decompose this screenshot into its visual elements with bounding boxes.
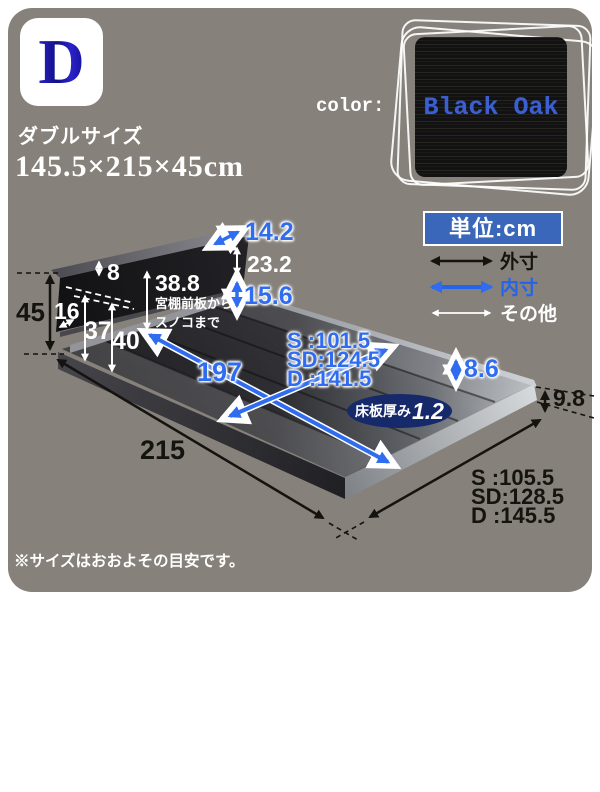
dim-outer-widths: S :105.5SD:128.5D :145.5: [471, 468, 564, 525]
outer-width-d: D :145.5: [471, 506, 564, 525]
floorboard-thickness-badge: 床板厚み 1.2: [347, 394, 452, 428]
note-line-1: 宮棚前板から: [155, 296, 233, 311]
legend-outer-label: 外寸: [500, 253, 538, 272]
dim-headboard-upper: 23.2: [247, 253, 292, 276]
dim-shelf-to-slat: 38.8: [155, 272, 200, 295]
floorboard-label: 床板厚み: [355, 404, 411, 418]
dim-inner-length: 197: [197, 359, 242, 386]
legend-other-label: その他: [500, 305, 557, 324]
disclaimer: ※サイズはおおよその目安です。 ※曲線部や若干の個体差などにより、 表記と多少の…: [14, 512, 353, 792]
size-badge: D: [20, 18, 103, 106]
dim-height-40: 40: [112, 329, 140, 354]
inner-width-d: D :141.5: [287, 369, 380, 388]
dim-height-37: 37: [84, 319, 112, 344]
disclaimer-line: ※曲線部や若干の個体差などにより、: [14, 612, 353, 632]
dim-frame-outer-height: 9.8: [553, 387, 585, 410]
dim-headboard-lower: 15.6: [244, 284, 293, 309]
disclaimer-line: あらかじめご了承ください。: [14, 732, 353, 752]
dim-outer-length: 215: [140, 437, 185, 464]
size-name: ダブルサイズ: [18, 127, 143, 147]
dim-frame-inner-height: 8.6: [464, 357, 499, 382]
dim-headboard-top-panel: 8: [107, 261, 120, 284]
dim-headboard-top-depth: 14.2: [245, 220, 294, 245]
color-swatch: Black Oak: [415, 37, 567, 177]
product-size-infographic: D ダブルサイズ 145.5×215×45cm color: Black Oak…: [0, 0, 600, 600]
size-dimensions: 145.5×215×45cm: [15, 152, 244, 182]
disclaimer-line: ※サイズはおおよその目安です。: [14, 552, 353, 572]
dim-shelf-depth: 16: [54, 300, 80, 323]
unit-box: 単位:cm: [423, 211, 563, 246]
dim-inner-widths: S :101.5SD:124.5D :141.5: [287, 331, 380, 388]
swatch-color-name: Black Oak: [423, 95, 558, 120]
size-badge-letter: D: [38, 30, 84, 94]
dim-total-height: 45: [16, 299, 45, 325]
legend-inner-label: 内寸: [500, 279, 538, 298]
dim-shelf-to-slat-note: 宮棚前板からスノコまで: [155, 295, 233, 333]
note-line-2: スノコまで: [155, 315, 220, 330]
color-label: color:: [316, 97, 384, 116]
disclaimer-line: 表記と多少の差異が生じることがございます。: [14, 672, 353, 692]
floorboard-value: 1.2: [412, 400, 444, 423]
